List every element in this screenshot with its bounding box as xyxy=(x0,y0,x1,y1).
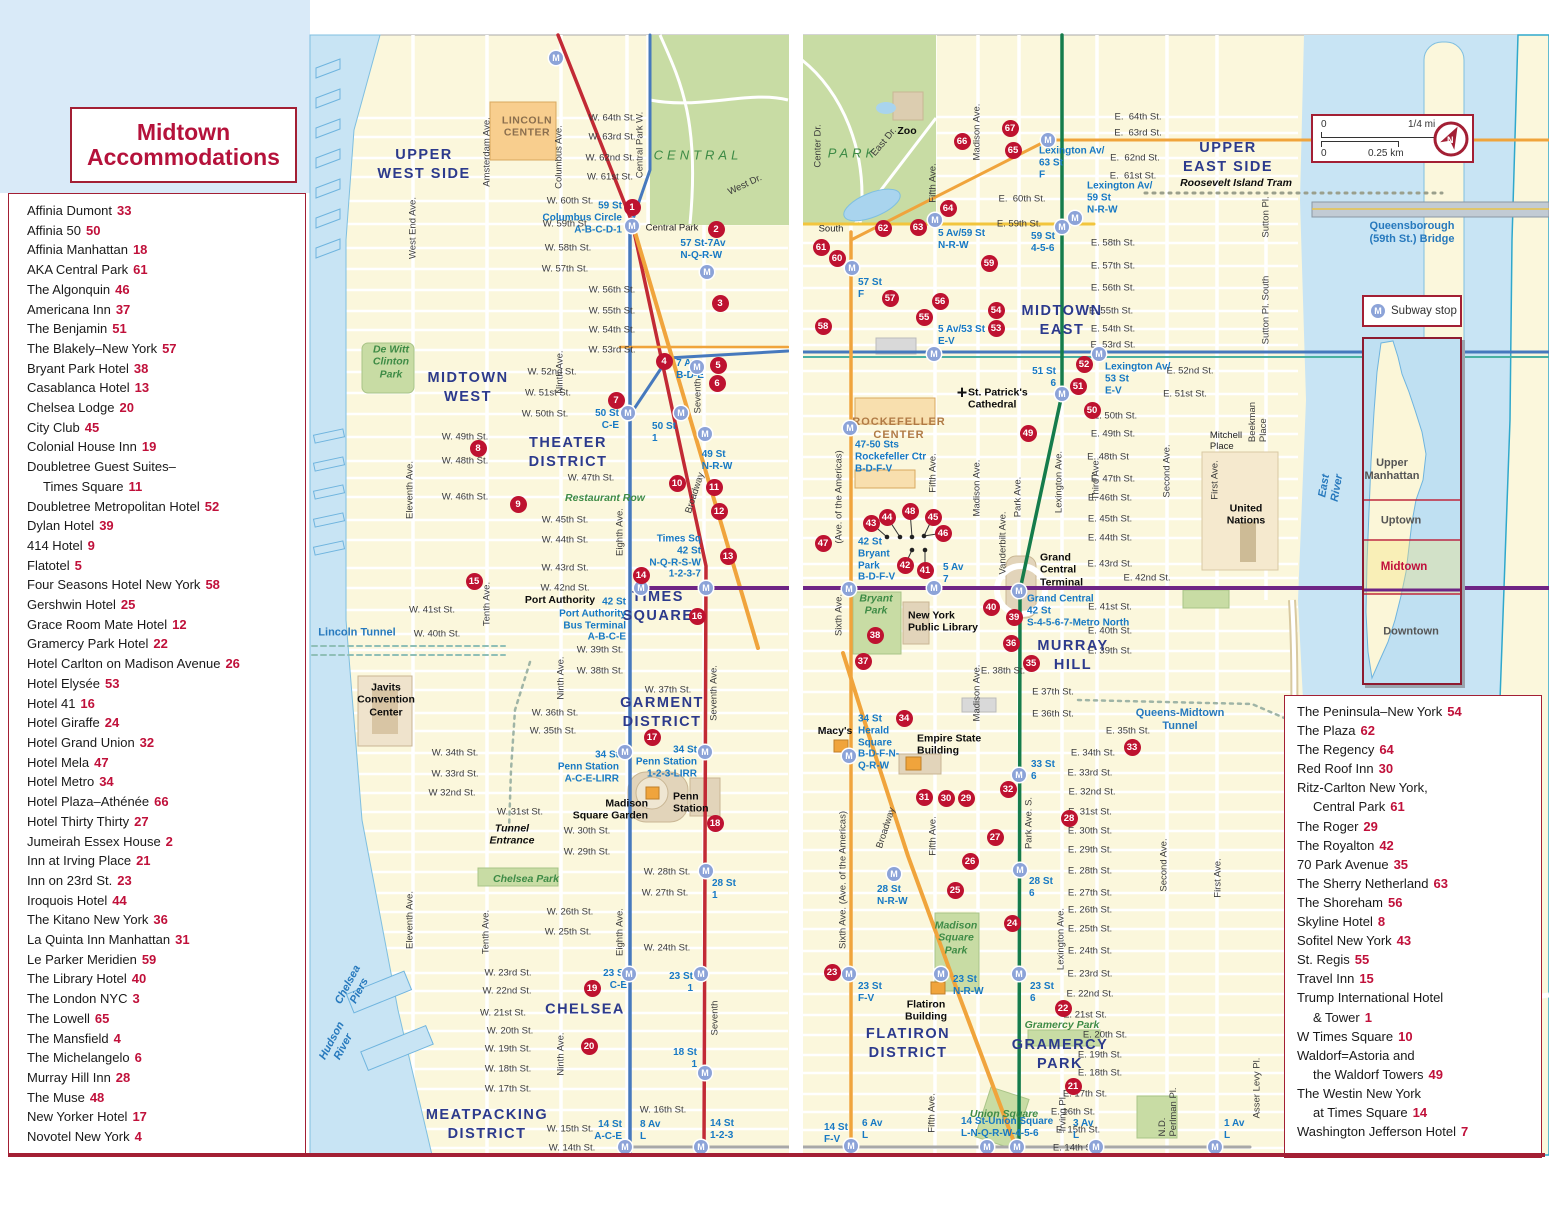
subway-stop-icon: M xyxy=(622,967,636,981)
map-marker-5: 5 xyxy=(710,357,727,374)
map-marker-10: 10 xyxy=(669,475,686,492)
avenue-label: Seventh Ave. xyxy=(708,665,719,721)
avenue-label: Fifth Ave. xyxy=(927,163,938,202)
hotel-list-item: 414 Hotel9 xyxy=(27,536,305,556)
street-label: E. 58th St. xyxy=(1091,237,1135,248)
map-marker-30: 30 xyxy=(938,790,955,807)
subway-station-label: 47-50 Sts Rockefeller Ctr B-D-F-V xyxy=(855,439,926,474)
street-label: W. 16th St. xyxy=(640,1104,686,1115)
street-label: W. 21st St. xyxy=(480,1007,526,1018)
street-label: W. 34th St. xyxy=(432,747,478,758)
avenue-label: Eleventh Ave. xyxy=(404,891,415,949)
hotel-list-item: Red Roof Inn30 xyxy=(1297,759,1541,778)
park-label: Chelsea Park xyxy=(493,873,559,885)
map-marker-47: 47 xyxy=(815,535,832,552)
street-label: W 32nd St. xyxy=(429,787,476,798)
subway-station-label: 14 St A-C-E xyxy=(594,1119,622,1143)
street-label: W. 28th St. xyxy=(644,866,690,877)
street-label: W. 47th St. xyxy=(568,472,614,483)
street-label: E. 60th St. xyxy=(999,193,1046,204)
subway-station-label: 28 St N-R-W xyxy=(877,884,908,908)
map-marker-46: 46 xyxy=(935,525,952,542)
map-marker-1: 1 xyxy=(624,199,641,216)
avenue-label: West End Ave. xyxy=(407,197,418,259)
subway-stop-icon: M xyxy=(1055,220,1069,234)
avenue-label: Asser Levy Pl. xyxy=(1251,1058,1262,1119)
street-label: W. 18th St. xyxy=(485,1063,531,1074)
avenue-label: Lexington Ave. xyxy=(1055,908,1066,970)
map-marker-25: 25 xyxy=(947,882,964,899)
map-marker-37: 37 xyxy=(855,653,872,670)
poi-label: Macy's xyxy=(818,725,853,737)
subway-stop-icon: M xyxy=(1012,967,1026,981)
street-label: W. 31st St. xyxy=(497,806,543,817)
subway-stop-icon: M xyxy=(674,406,688,420)
street-label: E. 62nd St. xyxy=(1110,152,1160,163)
subway-station-label: 49 St N-R-W xyxy=(702,449,733,473)
hotel-list-item: Affinia 5050 xyxy=(27,221,305,241)
subway-station-label: 14 St 1-2-3 xyxy=(710,1118,734,1142)
map-marker-42: 42 xyxy=(897,557,914,574)
poi-label: United Nations xyxy=(1227,503,1266,528)
scale-mi-zero: 0 xyxy=(1321,119,1327,130)
street-label: W. 27th St. xyxy=(642,887,688,898)
hotel-list-right: The Peninsula–New York54The Plaza62The R… xyxy=(1284,695,1542,1158)
street-label: W. 17th St. xyxy=(485,1083,531,1094)
subway-station-label: 33 St 6 xyxy=(1031,759,1055,783)
subway-stop-icon: M xyxy=(618,1140,632,1154)
subway-station-label: Grand Central 42 St S-4-5-6-7-Metro Nort… xyxy=(1027,593,1129,628)
inset-midtown-label: Midtown xyxy=(1381,561,1428,575)
avenue-label: Sutton Pl. xyxy=(1260,196,1271,237)
street-label: W. 63rd St. xyxy=(589,131,636,142)
title-box: Midtown Accommodations xyxy=(70,107,297,183)
map-marker-53: 53 xyxy=(988,320,1005,337)
hotel-list-item: Inn at Irving Place21 xyxy=(27,851,305,871)
subway-station-label: 59 St 4-5-6 xyxy=(1031,231,1055,255)
scale-mi-bar xyxy=(1321,132,1441,138)
subway-station-label: 23 St 1 xyxy=(669,971,693,995)
subway-station-label: 5 Av 7 xyxy=(943,562,963,586)
street-label: W. 64th St. xyxy=(589,112,635,123)
street-label: W. 62nd St. xyxy=(585,152,634,163)
subway-station-label: 8 Av L xyxy=(640,1119,660,1143)
hotel-list-item: Four Seasons Hotel New York58 xyxy=(27,575,305,595)
street-label: W. 39th St. xyxy=(577,644,623,655)
subway-stop-icon: M xyxy=(549,51,563,65)
subway-stop-icon: M xyxy=(690,360,704,374)
subway-station-label: 23 St N-R-W xyxy=(953,974,984,998)
map-marker-50: 50 xyxy=(1084,402,1101,419)
avenue-label: Park Ave. xyxy=(1012,477,1023,518)
subway-stop-icon: M xyxy=(1012,768,1026,782)
subway-stop-icon: M xyxy=(1089,1140,1103,1154)
subway-station-label: 42 St Bryant Park B-D-F-V xyxy=(858,536,895,583)
avenue-label: Sixth Ave. (Ave. of the Americas) xyxy=(837,811,848,949)
avenue-label: Sutton Pl. South xyxy=(1260,276,1271,345)
map-marker-13: 13 xyxy=(720,548,737,565)
subway-stop-icon: M xyxy=(694,967,708,981)
hotel-list-item: The Michelangelo6 xyxy=(27,1048,305,1068)
avenue-label: First Ave. xyxy=(1209,460,1220,499)
subway-station-label: Lexington Av/ 53 St E-V xyxy=(1105,361,1170,396)
subway-stop-icon: M xyxy=(1013,863,1027,877)
hotel-list-item: The Kitano New York36 xyxy=(27,910,305,930)
map-marker-19: 19 xyxy=(584,980,601,997)
street-label: W. 55th St. xyxy=(589,305,635,316)
street-label: W. 56th St. xyxy=(589,284,635,295)
poi-label: New York Public Library xyxy=(908,610,978,635)
street-label: E. 52nd St. xyxy=(1166,365,1213,376)
map-marker-45: 45 xyxy=(925,509,942,526)
hotel-list-item: Bryant Park Hotel38 xyxy=(27,359,305,379)
subway-stop-icon: M xyxy=(845,261,859,275)
subway-stop-icon: M xyxy=(700,265,714,279)
hotel-list-item: Dylan Hotel39 xyxy=(27,516,305,536)
map-marker-64: 64 xyxy=(940,200,957,217)
hotel-list-item: The Plaza62 xyxy=(1297,721,1541,740)
hotel-list-item: La Quinta Inn Manhattan31 xyxy=(27,930,305,950)
church-cross-icon: + xyxy=(957,382,968,403)
street-label: E. 42nd St. xyxy=(1123,572,1170,583)
avenue-label: Amsterdam Ave. xyxy=(481,117,492,187)
street-label: E. 43rd St. xyxy=(1088,558,1133,569)
street-label: E. 22nd St. xyxy=(1066,988,1113,999)
hotel-list-item: Inn on 23rd St.23 xyxy=(27,871,305,891)
map-marker-11: 11 xyxy=(706,479,723,496)
street-label: E 37th St. xyxy=(1032,686,1074,697)
poi-label: Madison Square Garden xyxy=(573,798,648,823)
avenue-label: Central Park W. xyxy=(634,112,645,179)
street-label: W. 43rd St. xyxy=(542,562,589,573)
map-marker-8: 8 xyxy=(470,440,487,457)
street-label: W. 54th St. xyxy=(589,324,635,335)
hotel-list-item: The Muse48 xyxy=(27,1088,305,1108)
subway-stop-icon: M xyxy=(844,1139,858,1153)
avenue-label: N.D. Perlman Pl. xyxy=(1157,1087,1179,1136)
map-marker-3: 3 xyxy=(712,295,729,312)
subway-stop-icon: M xyxy=(928,213,942,227)
map-marker-51: 51 xyxy=(1070,378,1087,395)
panel-gap xyxy=(789,30,803,1160)
subway-stop-icon: M xyxy=(1012,584,1026,598)
map-marker-66: 66 xyxy=(954,133,971,150)
avenue-label: First Ave. xyxy=(1212,858,1223,897)
hotel-list-item: Affinia Dumont33 xyxy=(27,201,305,221)
hotel-list-item: Hotel Plaza–Athénée66 xyxy=(27,792,305,812)
hotel-list-item: The London NYC3 xyxy=(27,989,305,1009)
hotel-list-item: Hotel Elysée53 xyxy=(27,674,305,694)
street-label: E. 23rd St. xyxy=(1068,968,1113,979)
street-label: E. 44th St. xyxy=(1088,532,1132,543)
map-marker-55: 55 xyxy=(916,309,933,326)
avenue-label: Vanderbilt Ave. xyxy=(997,511,1008,574)
compass-icon: N xyxy=(1431,119,1471,159)
street-label: E. 32nd St. xyxy=(1068,786,1115,797)
avenue-label: Eighth Ave. xyxy=(614,908,625,956)
subway-legend-label: Subway stop xyxy=(1391,305,1457,317)
hotel-list-item: The Peninsula–New York54 xyxy=(1297,702,1541,721)
map-marker-14: 14 xyxy=(633,567,650,584)
hotel-list-item: Hotel Carlton on Madison Avenue26 xyxy=(27,654,305,674)
subway-stop-icon: M xyxy=(1041,133,1055,147)
hotel-list-item: Casablanca Hotel13 xyxy=(27,378,305,398)
street-label: W. 36th St. xyxy=(532,707,578,718)
avenue-label: Lexington Ave. xyxy=(1053,451,1064,513)
subway-station-label: 28 St 6 xyxy=(1029,876,1053,900)
subway-stop-icon: M xyxy=(927,347,941,361)
subway-stop-icon: M xyxy=(1010,1140,1024,1154)
avenue-label: Center Dr. xyxy=(812,124,823,167)
hotel-list-item: Affinia Manhattan18 xyxy=(27,240,305,260)
hotel-list-item: Travel Inn15 xyxy=(1297,969,1541,988)
map-marker-54: 54 xyxy=(988,302,1005,319)
map-marker-57: 57 xyxy=(882,290,899,307)
street-label: E. 29th St. xyxy=(1068,844,1112,855)
water-label: Lincoln Tunnel xyxy=(318,627,395,640)
map-marker-23: 23 xyxy=(824,964,841,981)
street-label: E. 30th St. xyxy=(1068,825,1112,836)
subway-station-label: 28 St 1 xyxy=(712,878,736,902)
park-label: Restaurant Row xyxy=(565,492,645,504)
hotel-list-item: Hotel 4116 xyxy=(27,694,305,714)
subway-stop-icon: M xyxy=(842,749,856,763)
subway-stop-icon: M xyxy=(980,1140,994,1154)
map-marker-40: 40 xyxy=(983,599,1000,616)
hotel-list-item: The Mansfield4 xyxy=(27,1029,305,1049)
neighborhood-label: MIDTOWN WEST xyxy=(427,369,508,407)
subway-station-label: 23 St F-V xyxy=(858,981,882,1005)
hotel-list-item: Trump International Hotel& Tower1 xyxy=(1297,988,1541,1026)
hotel-list-item: The Regency64 xyxy=(1297,740,1541,759)
park-label: CENTRAL xyxy=(654,147,743,162)
avenue-label: Madison Ave. xyxy=(971,665,982,722)
map-marker-33: 33 xyxy=(1124,739,1141,756)
poi-label: South xyxy=(819,223,844,234)
map-marker-65: 65 xyxy=(1005,142,1022,159)
subway-station-label: 57 St F xyxy=(858,277,882,301)
street-label: W. 23rd St. xyxy=(485,967,532,978)
hotel-list-item: Ritz-Carlton New York,Central Park61 xyxy=(1297,778,1541,816)
avenue-label: Park Ave. S. xyxy=(1023,797,1034,849)
neighborhood-label: MIDTOWN EAST xyxy=(1021,302,1102,340)
street-label: W. 25th St. xyxy=(545,926,591,937)
map-marker-6: 6 xyxy=(709,375,726,392)
avenue-label: Ninth Ave. xyxy=(554,350,565,393)
neighborhood-label: THEATER DISTRICT xyxy=(529,434,608,472)
map-marker-26: 26 xyxy=(962,853,979,870)
subway-stop-icon: M xyxy=(698,745,712,759)
street-label: E. 56th St. xyxy=(1091,282,1135,293)
map-marker-12: 12 xyxy=(711,503,728,520)
street-label: W. 61st St. xyxy=(587,171,633,182)
hotel-list-item: The Royalton42 xyxy=(1297,836,1541,855)
subway-stop-icon: M xyxy=(1055,387,1069,401)
neighborhood-label: MURRAY HILL xyxy=(1037,637,1108,675)
subway-station-label: 5 Av/53 St E-V xyxy=(938,324,985,348)
neighborhood-label: FLATIRON DISTRICT xyxy=(866,1025,950,1063)
hotel-list-item: Hotel Grand Union32 xyxy=(27,733,305,753)
street-label: W. 57th St. xyxy=(542,263,588,274)
subway-stop-icon: M xyxy=(842,967,856,981)
poi-label: Port Authority xyxy=(525,594,595,606)
map-marker-29: 29 xyxy=(958,790,975,807)
poi-label: Grand Central Terminal xyxy=(1040,551,1083,588)
poi-label: Javits Convention Center xyxy=(357,681,415,718)
subway-stop-icon: M xyxy=(621,406,635,420)
hotel-list-item: Jumeirah Essex House2 xyxy=(27,832,305,852)
street-label: E. 27th St. xyxy=(1068,887,1112,898)
neighborhood-label: GARMENT DISTRICT xyxy=(620,694,704,732)
hotel-list-item: Le Parker Meridien59 xyxy=(27,950,305,970)
hotel-list-item: Novotel New York4 xyxy=(27,1127,305,1147)
hotel-list-item: Sofitel New York43 xyxy=(1297,931,1541,950)
subway-stop-icon: M xyxy=(934,967,948,981)
hotel-list-item: The Benjamin51 xyxy=(27,319,305,339)
subway-stop-icon: M xyxy=(1371,304,1385,318)
street-label: W. 45th St. xyxy=(542,514,588,525)
subway-station-label: 59 St Columbus Circle A-B-C-D-1 xyxy=(543,200,622,235)
street-label: E. 63rd St. xyxy=(1114,127,1162,138)
street-label: E. 57th St. xyxy=(1091,260,1135,271)
map-marker-35: 35 xyxy=(1023,655,1040,672)
street-label: W. 44th St. xyxy=(542,534,588,545)
neighborhood-label: CHELSEA xyxy=(545,1001,625,1020)
subway-stop-icon: M xyxy=(699,864,713,878)
street-label: E 36th St. xyxy=(1032,708,1074,719)
map-marker-28: 28 xyxy=(1061,810,1078,827)
map-marker-48: 48 xyxy=(902,503,919,520)
map-marker-24: 24 xyxy=(1004,915,1021,932)
map-marker-38: 38 xyxy=(867,627,884,644)
scale-km-label: 0.25 km xyxy=(1368,148,1404,159)
street-label: W. 30th St. xyxy=(564,825,610,836)
street-label: E. 49th St. xyxy=(1091,428,1135,439)
hotel-list-item: The Algonquin46 xyxy=(27,280,305,300)
hotel-list-item: The Library Hotel40 xyxy=(27,969,305,989)
map-marker-17: 17 xyxy=(644,729,661,746)
map-marker-63: 63 xyxy=(910,219,927,236)
subway-stop-icon: M xyxy=(843,421,857,435)
hotel-list-item: Hotel Giraffe24 xyxy=(27,713,305,733)
street-label: W. 40th St. xyxy=(414,628,460,639)
map-marker-61: 61 xyxy=(813,239,830,256)
subway-station-label: 5 Av/59 St N-R-W xyxy=(938,228,985,252)
street-label: W. 41st St. xyxy=(409,604,455,615)
street-label: E. 28th St. xyxy=(1068,865,1112,876)
street-label: W. 20th St. xyxy=(487,1025,533,1036)
map-marker-15: 15 xyxy=(466,573,483,590)
neighborhood-label: GRAMERCY PARK xyxy=(1012,1036,1109,1074)
hotel-list-item: Hotel Mela47 xyxy=(27,753,305,773)
map-marker-31: 31 xyxy=(916,789,933,806)
subway-station-label: 23 St 6 xyxy=(1030,981,1054,1005)
avenue-label: Fifth Ave. xyxy=(927,453,938,492)
poi-label: Empire State Building xyxy=(917,733,981,758)
subway-station-label: 50 St 1 xyxy=(652,421,676,445)
hotel-list-item: Americana Inn37 xyxy=(27,300,305,320)
map-marker-59: 59 xyxy=(981,255,998,272)
avenue-label: Madison Ave. xyxy=(971,460,982,517)
subway-station-label: Lexington Av/ 59 St N-R-W xyxy=(1087,180,1152,215)
map-marker-39: 39 xyxy=(1006,609,1023,626)
hotel-list-item: Iroquois Hotel44 xyxy=(27,891,305,911)
hotel-list-item: Doubletree Metropolitan Hotel52 xyxy=(27,497,305,517)
hotel-list-item: City Club45 xyxy=(27,418,305,438)
map-marker-20: 20 xyxy=(581,1038,598,1055)
zoo-buildings xyxy=(893,92,923,120)
avenue-label: Madison Ave. xyxy=(971,104,982,161)
street-label: W. 38th St. xyxy=(577,665,623,676)
street-label: E. 45th St. xyxy=(1088,513,1132,524)
subway-stop-icon: M xyxy=(699,581,713,595)
hotel-list-item: Skyline Hotel8 xyxy=(1297,912,1541,931)
map-marker-60: 60 xyxy=(829,250,846,267)
hotel-list-item: The Shoreham56 xyxy=(1297,893,1541,912)
avenue-label: Columbus Ave. xyxy=(553,125,564,189)
subway-station-label: 6 Av L xyxy=(862,1118,882,1142)
street-label: W. 26th St. xyxy=(547,906,593,917)
avenue-label: Eleventh Ave. xyxy=(404,461,415,519)
inset-downtown-label: Downtown xyxy=(1383,626,1439,639)
map-marker-44: 44 xyxy=(879,509,896,526)
avenue-label: Sixth Ave. xyxy=(833,594,844,636)
map-marker-27: 27 xyxy=(987,829,1004,846)
neighborhood-label: UPPER EAST SIDE xyxy=(1183,139,1273,177)
street-label: E. 34th St. xyxy=(1071,747,1115,758)
street-label: E. 59th St. xyxy=(997,218,1041,229)
street-label: W. 52nd St. xyxy=(527,366,576,377)
map-marker-67: 67 xyxy=(1002,120,1019,137)
map-bottom-border xyxy=(8,1153,1545,1157)
map-marker-34: 34 xyxy=(896,710,913,727)
hotel-list-item: St. Regis55 xyxy=(1297,950,1541,969)
park-label: Gramercy Park xyxy=(1025,1019,1100,1031)
avenue-label: Third Ave. xyxy=(1090,458,1101,501)
subway-stop-icon: M xyxy=(698,427,712,441)
scale-bar: 0 1/4 mi 0 0.25 km N xyxy=(1311,114,1474,163)
street-label: W. 42nd St. xyxy=(540,582,589,593)
park-label: Union Square xyxy=(970,1108,1038,1120)
poi-label: ROCKEFELLER CENTER xyxy=(852,416,946,442)
avenue-label: (Ave. of the Americas) xyxy=(833,450,844,543)
hotel-list-item: Chelsea Lodge20 xyxy=(27,398,305,418)
map-marker-16: 16 xyxy=(689,608,706,625)
map-marker-56: 56 xyxy=(932,293,949,310)
subway-station-label: 3 Av L xyxy=(1073,1118,1093,1142)
map-marker-4: 4 xyxy=(656,353,673,370)
subway-stop-icon: M xyxy=(698,1066,712,1080)
street-label: E. 64th St. xyxy=(1115,111,1162,122)
hotel-list-item: Waldorf=Astoria andthe Waldorf Towers49 xyxy=(1297,1046,1541,1084)
subway-station-label: 18 St 1 xyxy=(673,1047,697,1071)
avenue-label: Second Ave. xyxy=(1158,838,1169,891)
hotel-list-item: Grace Room Mate Hotel12 xyxy=(27,615,305,635)
street-label: W. 29th St. xyxy=(564,846,610,857)
subway-stop-icon: M xyxy=(887,867,901,881)
subway-stop-icon: M xyxy=(927,581,941,595)
subway-stop-icon: M xyxy=(842,582,856,596)
subway-station-label: Lexington Av/ 63 St F xyxy=(1039,145,1104,180)
street-label: W. 48th St. xyxy=(442,455,488,466)
subway-station-label: Times Sq 42 St N-Q-R-S-W 1-2-3-7 xyxy=(649,533,701,580)
avenue-label: Irving Pl. xyxy=(1057,1095,1068,1132)
street-label: W. 14th St. xyxy=(549,1142,595,1153)
hotel-list-left: Affinia Dumont33Affinia 5050Affinia Manh… xyxy=(8,193,306,1155)
street-label: W. 24th St. xyxy=(644,942,690,953)
avenue-label: Fifth Ave. xyxy=(926,1093,937,1132)
avenue-label: Fifth Ave. xyxy=(927,816,938,855)
